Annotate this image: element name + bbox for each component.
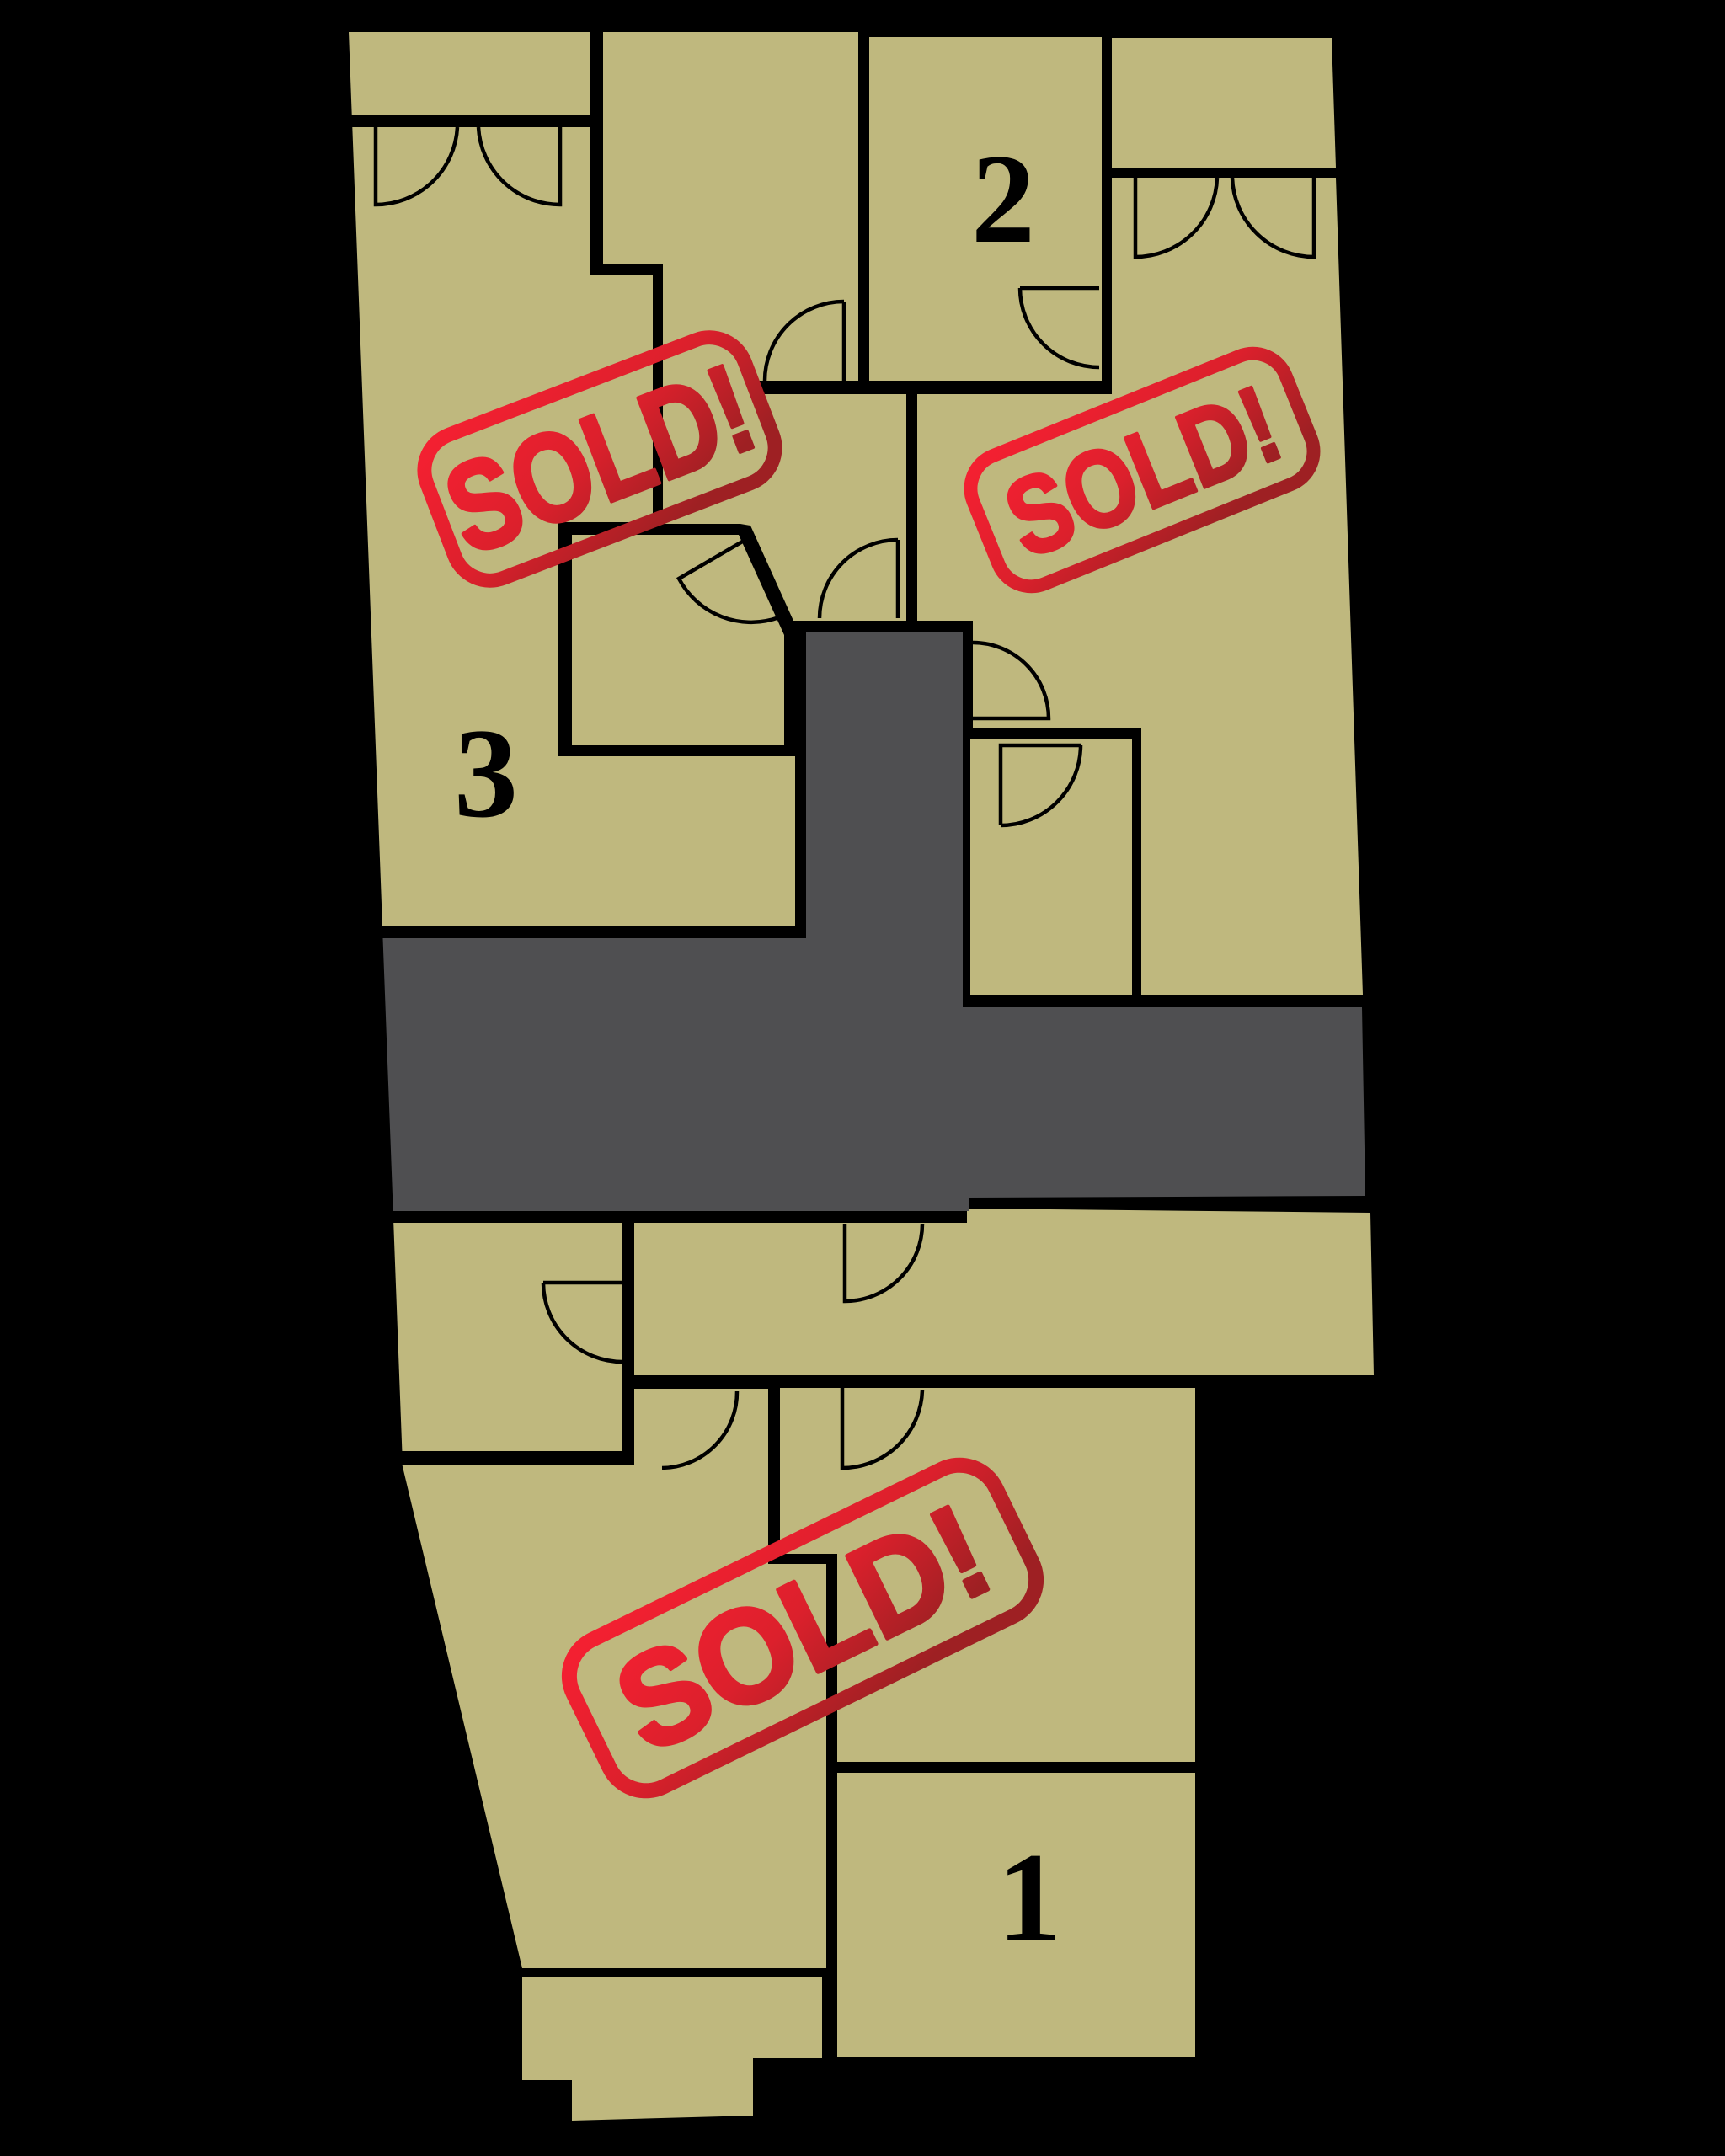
svg-text:1: 1 [997, 1827, 1061, 1968]
svg-text:2: 2 [971, 128, 1035, 269]
svg-text:3: 3 [454, 702, 518, 844]
